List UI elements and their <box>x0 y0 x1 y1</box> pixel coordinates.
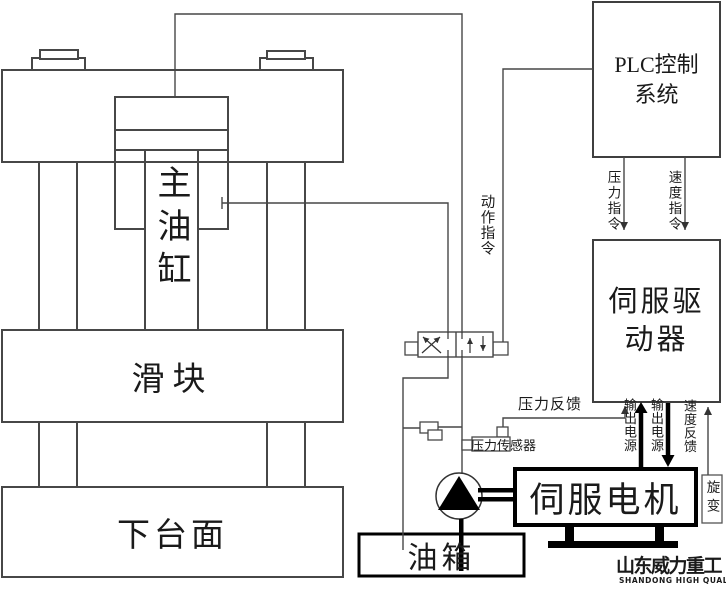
diagram-page: 主油缸 滑块 下台面 PLC控制 系统 伺服驱 动器 伺服电机 油箱 旋变 动作… <box>0 0 726 595</box>
oil-tank-label: 油箱 <box>359 534 524 576</box>
main-cylinder-label: 主油缸 <box>153 165 187 294</box>
speed-command-label: 速度指令 <box>667 170 681 232</box>
motor-base <box>548 541 678 548</box>
pressure-command-label: 压力指令 <box>606 170 620 232</box>
cylinder-top-pipe <box>175 14 462 332</box>
brand-logo-en: SHANDONG HIGH QUALITY <box>619 577 726 585</box>
motor-stand <box>548 527 678 548</box>
valve-actuator-right <box>493 342 508 355</box>
return-pipe <box>403 357 448 550</box>
press-structure <box>2 50 343 162</box>
top-cap-left-upper <box>40 50 78 59</box>
output-power-down-label: 输出电源 <box>650 398 663 452</box>
cylinder-rod-pipe <box>222 203 448 332</box>
relief-valve-body2 <box>428 430 442 440</box>
sensor-top-port <box>497 427 508 437</box>
plc-line1: PLC控制 <box>614 54 698 76</box>
press-lines2 <box>39 422 305 487</box>
output-power-up-label: 输出电源 <box>623 398 636 452</box>
brand-logo-cn: 山东威力重工 <box>616 557 721 576</box>
action-command-label: 动作指令 <box>479 194 494 256</box>
pressure-feedback-label: 压力反馈 <box>518 398 582 413</box>
resolver-label: 旋变 <box>705 480 719 517</box>
relief-valve <box>420 422 442 440</box>
speed-feedback-label: 速度反馈 <box>683 399 696 453</box>
motor-shaft-upper <box>478 488 515 493</box>
servo-driver-label: 伺服驱 动器 <box>593 240 720 402</box>
directional-valve <box>405 332 508 357</box>
motor-leg-right <box>655 527 664 542</box>
servo-driver-line2: 动器 <box>624 326 688 355</box>
slider-label: 滑块 <box>2 330 343 422</box>
servo-motor-label: 伺服电机 <box>515 469 696 525</box>
plc-label: PLC控制 系统 <box>593 2 720 157</box>
cylinder-head <box>115 97 228 150</box>
power-down-arrowhead <box>662 455 675 467</box>
valve-actuator-left <box>405 342 418 355</box>
motor-leg-left <box>565 527 574 542</box>
plc-line2: 系统 <box>634 84 678 106</box>
columns-lower <box>39 422 305 487</box>
pressure-sensor-label: 压力传感器 <box>471 439 536 452</box>
plc-valve-wire <box>503 69 593 342</box>
lower-table-label: 下台面 <box>2 487 343 577</box>
motor-shaft-lower <box>478 497 515 502</box>
top-cap-right-upper <box>267 51 305 59</box>
servo-driver-line1: 伺服驱 <box>608 288 704 317</box>
